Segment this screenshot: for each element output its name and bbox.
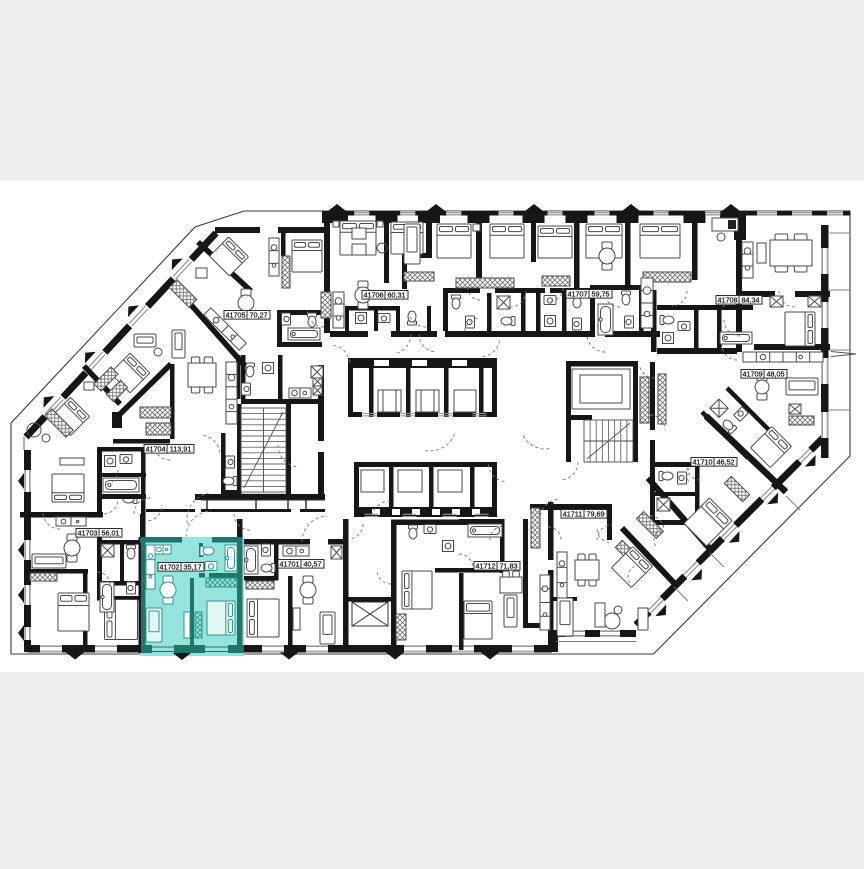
svg-text:35,17: 35,17	[184, 563, 202, 572]
svg-text:79,69: 79,69	[587, 510, 605, 519]
svg-text:41705: 41705	[226, 311, 246, 320]
svg-text:41712: 41712	[476, 562, 496, 571]
svg-text:84,34: 84,34	[742, 296, 760, 305]
svg-text:41709: 41709	[743, 370, 763, 379]
svg-text:41711: 41711	[563, 510, 582, 519]
svg-text:60,31: 60,31	[388, 291, 406, 300]
svg-text:70,27: 70,27	[250, 311, 268, 320]
svg-text:71,83: 71,83	[500, 562, 518, 571]
svg-text:46,52: 46,52	[717, 458, 735, 467]
svg-text:48,05: 48,05	[767, 370, 785, 379]
svg-text:113,91: 113,91	[170, 445, 191, 454]
svg-text:59,75: 59,75	[592, 290, 610, 299]
svg-text:41701: 41701	[280, 560, 300, 569]
svg-text:56,01: 56,01	[102, 529, 120, 538]
svg-text:41704: 41704	[146, 445, 166, 454]
svg-text:40,57: 40,57	[304, 560, 322, 569]
svg-text:41707: 41707	[568, 290, 588, 299]
svg-text:41710: 41710	[693, 458, 713, 467]
svg-text:41706: 41706	[364, 291, 384, 300]
svg-text:41708: 41708	[718, 296, 738, 305]
svg-text:41703: 41703	[78, 529, 98, 538]
svg-text:41702: 41702	[160, 563, 180, 572]
